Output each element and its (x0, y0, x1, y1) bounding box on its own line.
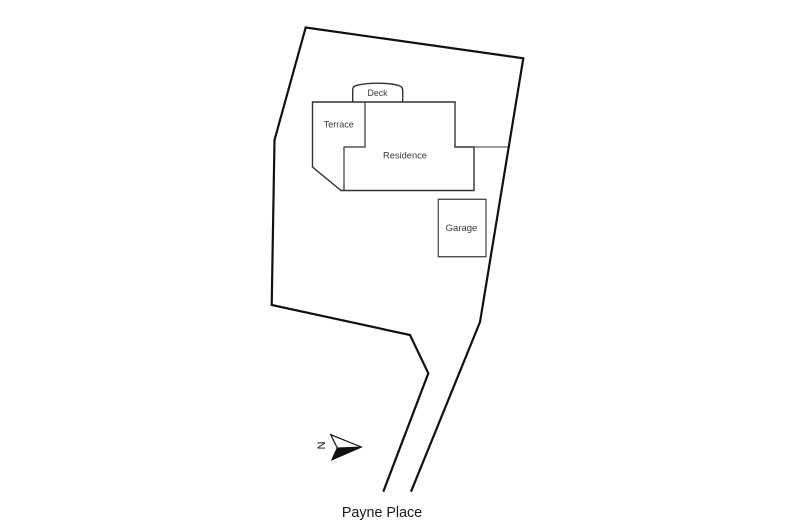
street-label: Payne Place (342, 505, 422, 521)
north-arrow-solid-half (332, 447, 361, 460)
deck-label: Deck (367, 88, 388, 98)
building-outline (313, 102, 475, 191)
residence-label: Residence (383, 151, 427, 161)
garage-label: Garage (446, 223, 478, 234)
property-boundary-line (272, 28, 524, 492)
north-arrow-icon: N (315, 435, 362, 460)
terrace-divider-line (344, 102, 365, 191)
terrace-label: Terrace (324, 120, 354, 130)
site-plan-drawing: N Deck Terrace Residence Garage Payne Pl… (0, 0, 790, 527)
site-plan: N Deck Terrace Residence Garage Payne Pl… (0, 0, 790, 527)
north-label: N (315, 442, 327, 450)
